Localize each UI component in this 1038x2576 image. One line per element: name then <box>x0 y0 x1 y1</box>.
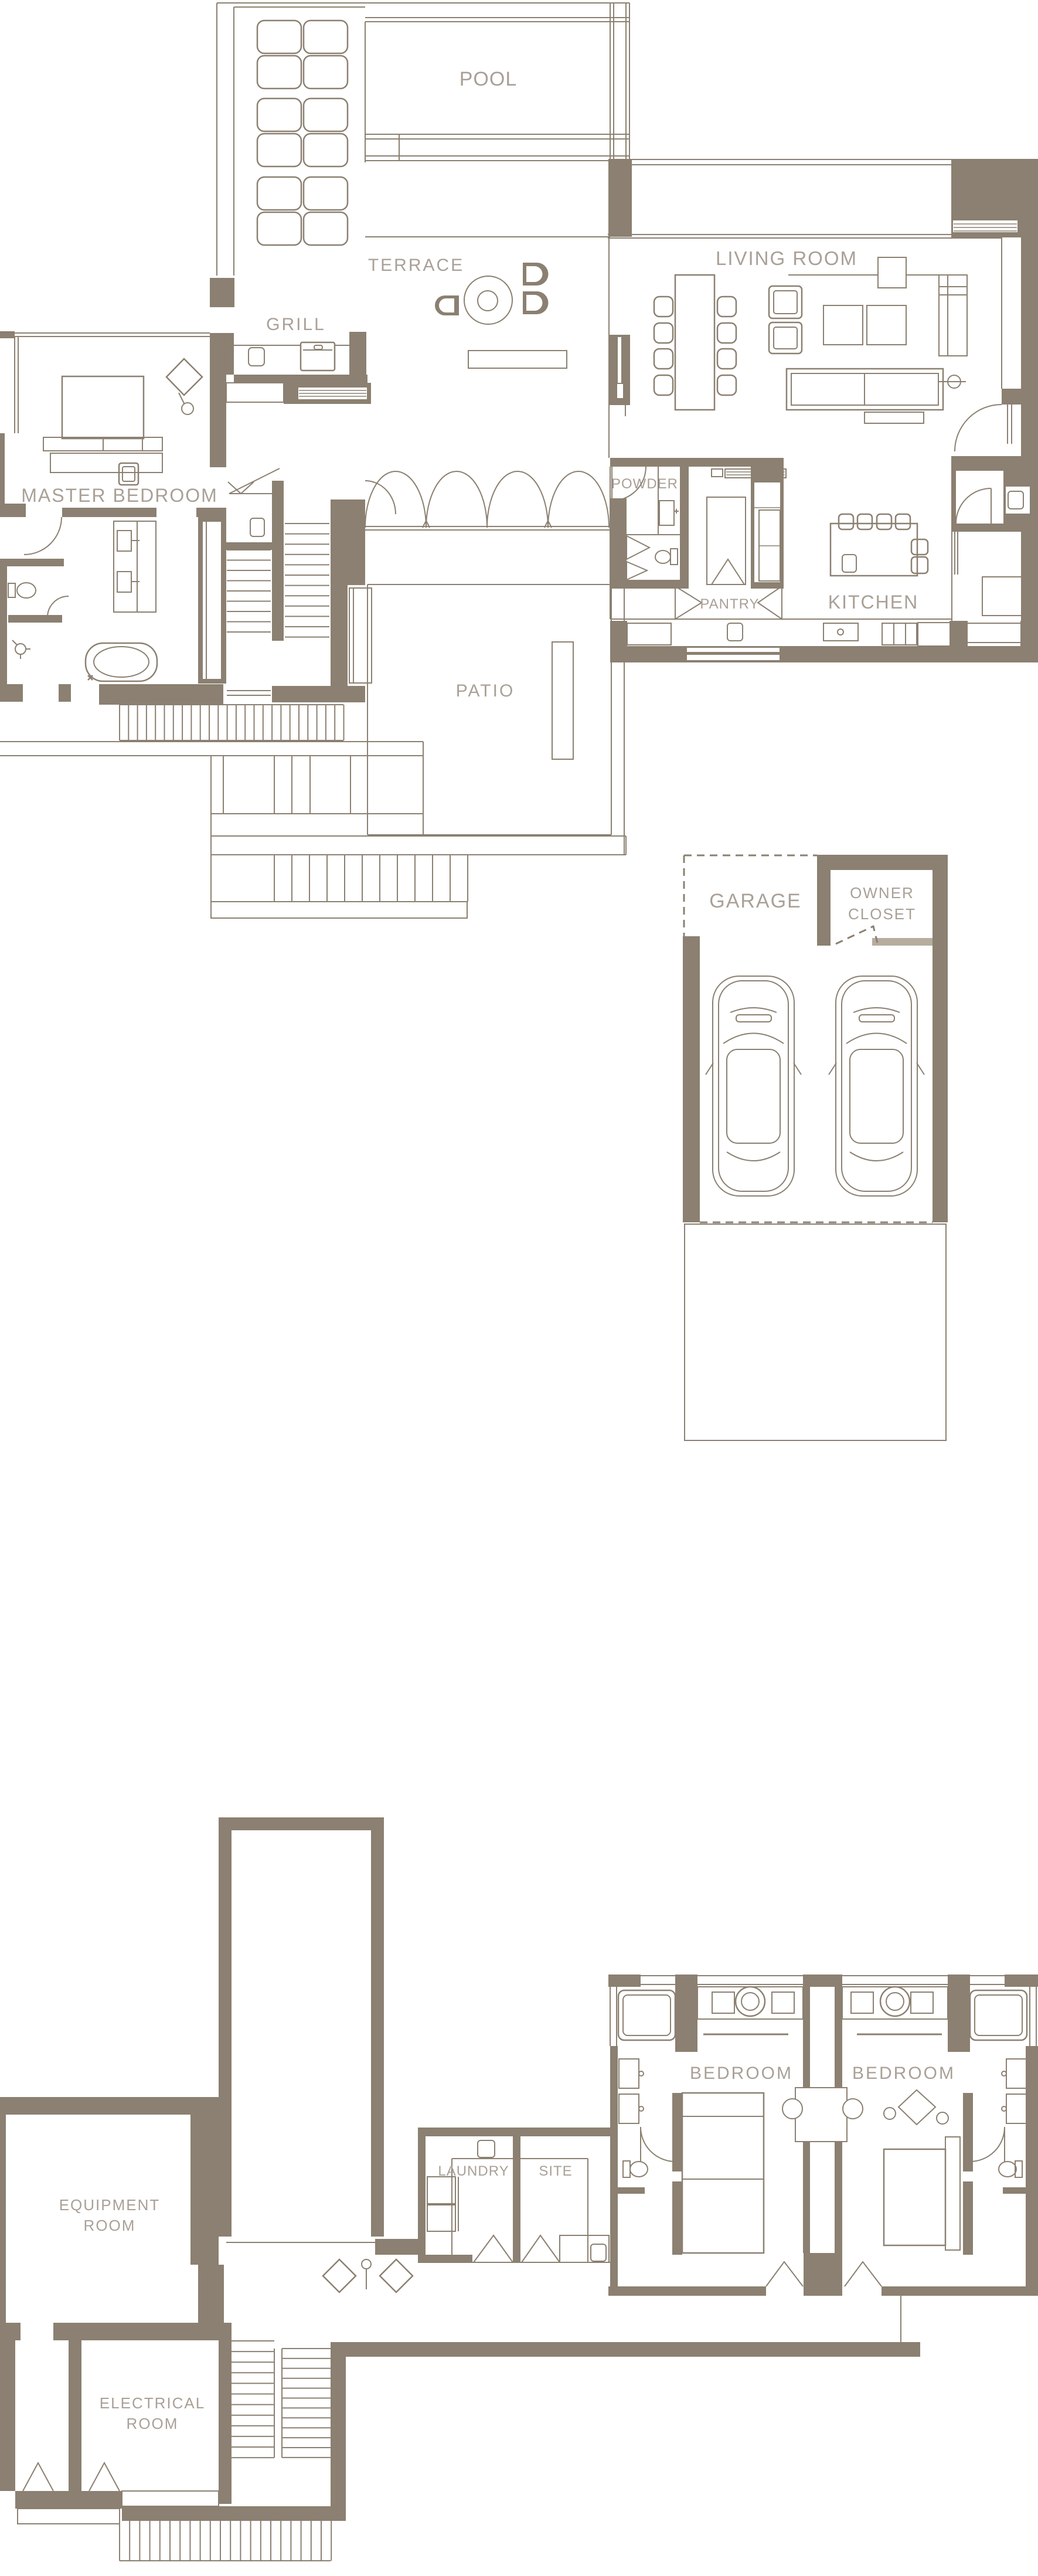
svg-text:OWNER: OWNER <box>850 884 914 902</box>
svg-text:MASTER BEDROOM: MASTER BEDROOM <box>21 485 218 506</box>
svg-text:EQUIPMENT: EQUIPMENT <box>59 2196 161 2214</box>
svg-text:GARAGE: GARAGE <box>709 890 801 912</box>
svg-text:KITCHEN: KITCHEN <box>828 592 918 613</box>
svg-text:PANTRY: PANTRY <box>700 596 759 612</box>
svg-text:TERRACE: TERRACE <box>368 256 464 275</box>
svg-text:POWDER: POWDER <box>611 476 678 492</box>
svg-text:ELECTRICAL: ELECTRICAL <box>100 2394 205 2412</box>
svg-text:ROOM: ROOM <box>127 2415 179 2432</box>
svg-text:BEDROOM: BEDROOM <box>690 2064 793 2083</box>
svg-text:POOL: POOL <box>460 68 517 90</box>
svg-text:PATIO: PATIO <box>456 681 515 701</box>
svg-text:GRILL: GRILL <box>266 315 326 334</box>
svg-text:ROOM: ROOM <box>84 2217 136 2234</box>
svg-text:LIVING ROOM: LIVING ROOM <box>716 247 857 269</box>
svg-text:SITE: SITE <box>539 2163 572 2179</box>
svg-text:CLOSET: CLOSET <box>848 905 916 923</box>
svg-text:LAUNDRY: LAUNDRY <box>438 2163 509 2179</box>
svg-text:BEDROOM: BEDROOM <box>852 2064 955 2083</box>
